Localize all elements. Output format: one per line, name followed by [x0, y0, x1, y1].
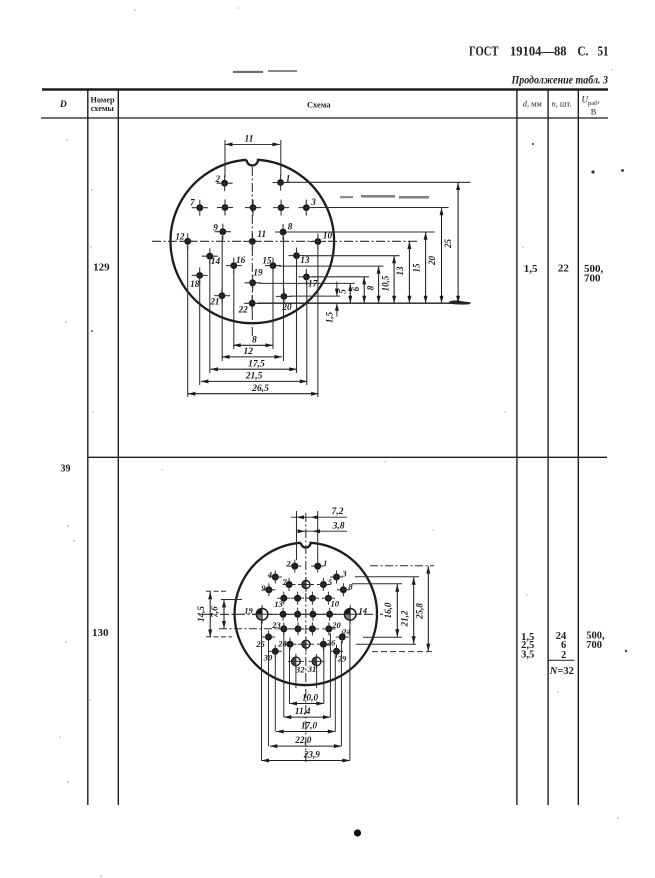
svg-text:13: 13 — [300, 255, 310, 265]
svg-text:25: 25 — [443, 239, 453, 250]
svg-text:19: 19 — [244, 606, 253, 616]
svg-text:С.: С. — [578, 43, 589, 58]
svg-text:30: 30 — [263, 653, 273, 663]
svg-text:25,8: 25,8 — [414, 603, 424, 620]
svg-text:3,5: 3,5 — [521, 650, 534, 661]
svg-text:1: 1 — [323, 558, 327, 568]
svg-text:51: 51 — [598, 43, 609, 58]
svg-text:ГОСТ: ГОСТ — [469, 43, 499, 58]
svg-text:1,5: 1,5 — [524, 263, 538, 275]
svg-text:8: 8 — [252, 335, 257, 345]
svg-text:3,8: 3,8 — [332, 521, 345, 531]
svg-text:22: 22 — [238, 304, 249, 314]
svg-text:12: 12 — [244, 347, 254, 357]
svg-text:28: 28 — [277, 639, 287, 649]
svg-text:15: 15 — [262, 255, 272, 265]
svg-text:D: D — [59, 100, 67, 110]
svg-text:700: 700 — [584, 272, 601, 284]
svg-text:22,0: 22,0 — [294, 735, 311, 745]
svg-text:14: 14 — [211, 256, 221, 266]
svg-text:39: 39 — [61, 464, 71, 475]
svg-text:4: 4 — [267, 570, 273, 580]
svg-text:8: 8 — [288, 222, 293, 232]
svg-text:700: 700 — [586, 640, 602, 651]
svg-text:14,5: 14,5 — [196, 606, 206, 622]
svg-text:8: 8 — [366, 285, 376, 290]
svg-text:8: 8 — [348, 582, 353, 592]
svg-text:5: 5 — [328, 577, 333, 587]
svg-text:13: 13 — [274, 599, 283, 609]
svg-text:n, шт.: n, шт. — [552, 100, 572, 109]
svg-text:3: 3 — [341, 569, 347, 579]
svg-text:15: 15 — [411, 263, 421, 273]
svg-text:2: 2 — [215, 174, 221, 184]
svg-text:11: 11 — [257, 229, 266, 239]
svg-text:Uраб,: Uраб, — [582, 95, 600, 108]
svg-text:18: 18 — [190, 279, 200, 289]
svg-text:10: 10 — [331, 599, 340, 609]
svg-text:22: 22 — [558, 262, 570, 274]
svg-text:16,0: 16,0 — [383, 602, 393, 618]
svg-text:19: 19 — [253, 267, 263, 277]
svg-text:21: 21 — [209, 297, 219, 307]
svg-text:21,2: 21,2 — [400, 610, 410, 627]
svg-text:13: 13 — [395, 266, 405, 276]
svg-text:схемы: схемы — [91, 104, 115, 113]
svg-text:3: 3 — [310, 197, 316, 207]
svg-text:2: 2 — [561, 650, 566, 661]
svg-text:11: 11 — [245, 135, 254, 145]
svg-text:Схема: Схема — [307, 101, 331, 110]
svg-text:14: 14 — [359, 606, 368, 616]
svg-text:Продолжение табл. 3: Продолжение табл. 3 — [511, 74, 609, 86]
svg-text:16: 16 — [236, 255, 246, 265]
svg-text:11,4: 11,4 — [295, 706, 311, 716]
svg-text:7: 7 — [282, 577, 287, 587]
svg-text:В: В — [591, 108, 597, 117]
svg-text:31: 31 — [307, 664, 317, 674]
svg-text:26,5: 26,5 — [251, 384, 269, 394]
svg-text:d, мм: d, мм — [523, 100, 543, 109]
svg-text:6: 6 — [351, 286, 361, 291]
svg-text:9: 9 — [261, 583, 266, 593]
svg-text:10,5: 10,5 — [381, 275, 391, 291]
svg-text:129: 129 — [93, 261, 110, 273]
svg-text:7: 7 — [190, 198, 195, 208]
svg-text:17,5: 17,5 — [248, 359, 265, 369]
svg-text:N=32: N=32 — [549, 666, 574, 677]
svg-text:9: 9 — [213, 222, 218, 232]
svg-text:12: 12 — [175, 232, 185, 242]
svg-text:23,9: 23,9 — [303, 749, 320, 759]
svg-text:20: 20 — [331, 620, 341, 630]
svg-text:7,6: 7,6 — [209, 606, 219, 618]
svg-text:17,0: 17,0 — [301, 720, 317, 730]
svg-text:21,5: 21,5 — [245, 372, 263, 382]
svg-text:19104—88: 19104—88 — [510, 43, 567, 58]
svg-text:32: 32 — [295, 665, 305, 675]
svg-text:7,2: 7,2 — [332, 507, 344, 517]
svg-text:20: 20 — [427, 256, 437, 267]
svg-text:1,5: 1,5 — [325, 311, 335, 323]
svg-text:25: 25 — [255, 639, 265, 649]
svg-text:2: 2 — [285, 559, 291, 569]
svg-text:5: 5 — [337, 289, 347, 294]
svg-text:130: 130 — [92, 627, 109, 639]
svg-text:10,0: 10,0 — [302, 692, 318, 702]
